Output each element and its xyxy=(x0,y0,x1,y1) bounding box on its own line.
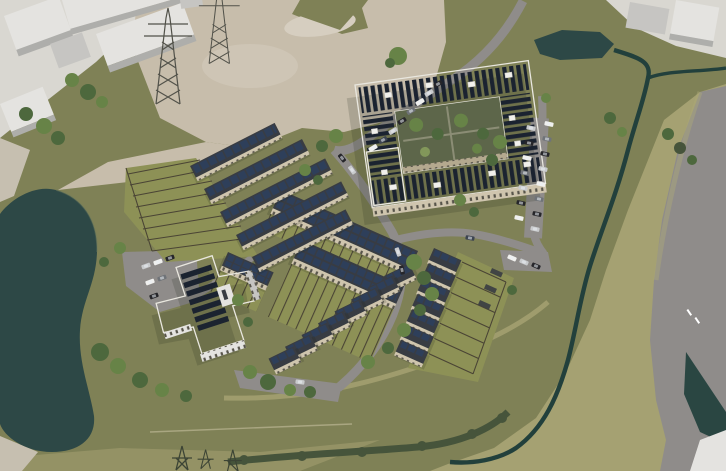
render-viewport xyxy=(0,0,726,471)
aerial-site-render xyxy=(0,0,726,471)
